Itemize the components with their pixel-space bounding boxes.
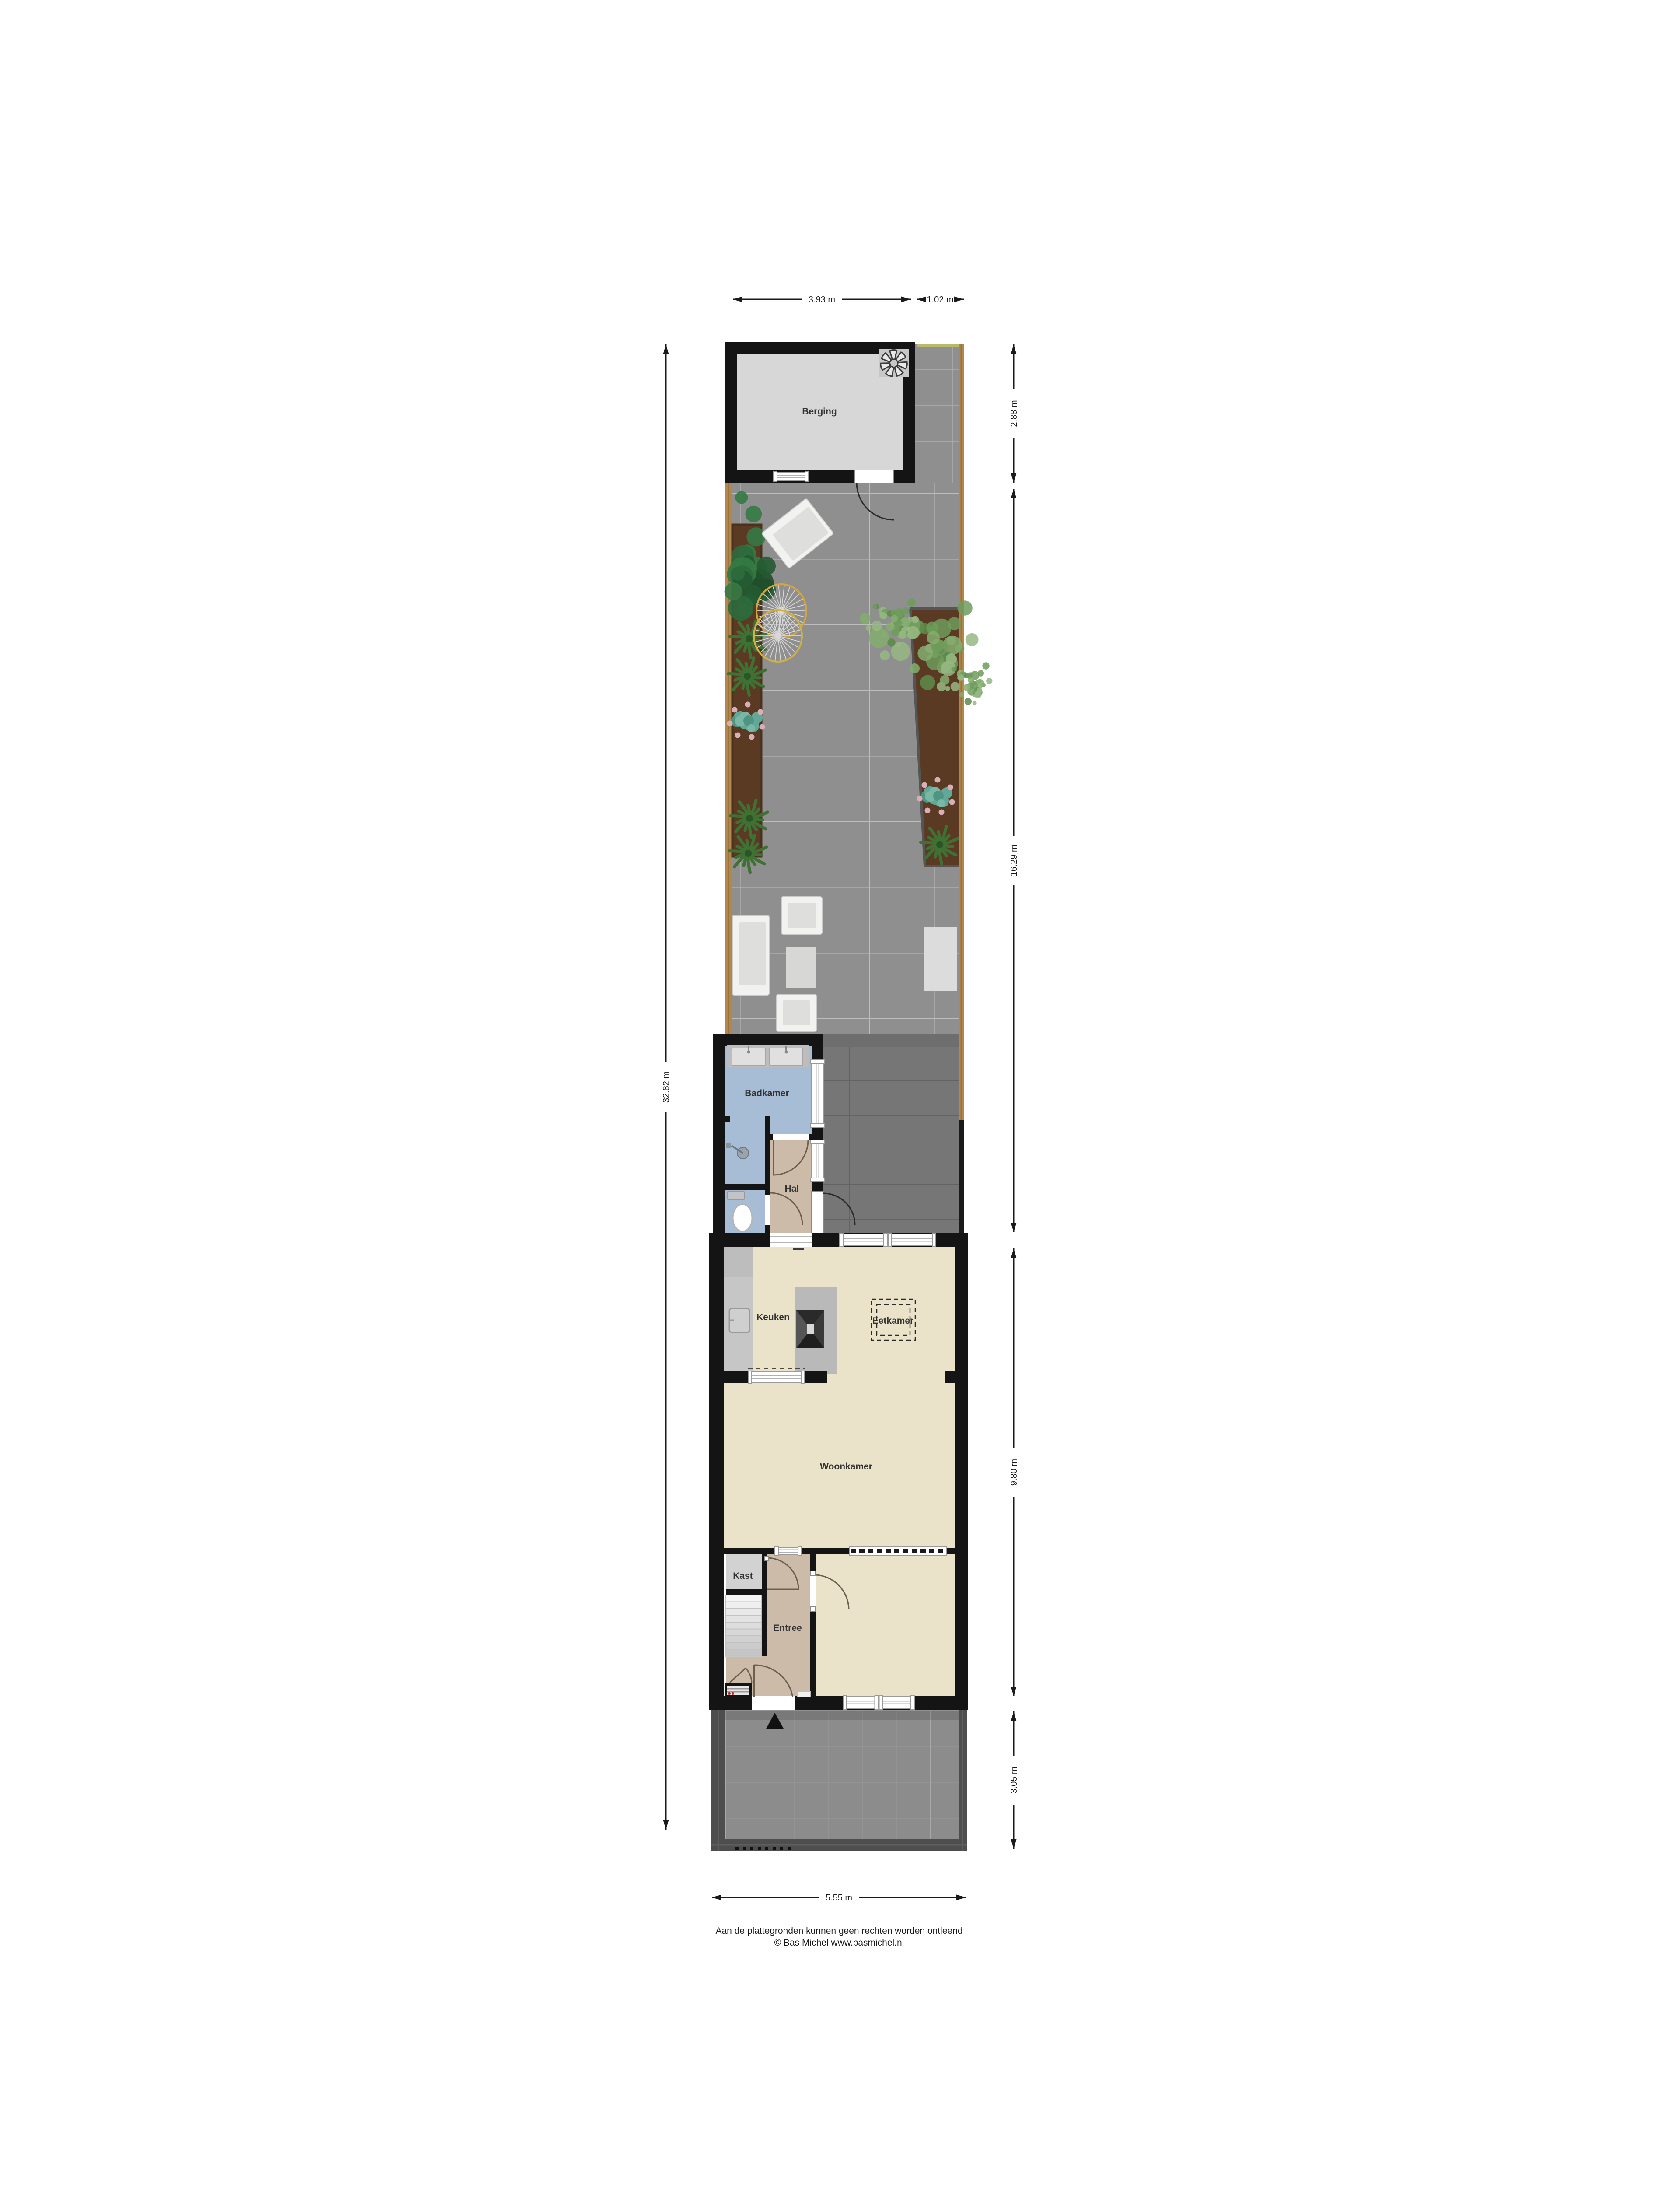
svg-text:9.80 m: 9.80 m — [1009, 1459, 1019, 1486]
svg-text:Entree: Entree — [773, 1623, 801, 1633]
svg-text:Hal: Hal — [785, 1184, 799, 1194]
svg-text:Aan de plattegronden kunnen ge: Aan de plattegronden kunnen geen rechten… — [715, 1926, 962, 1936]
svg-text:Kast: Kast — [733, 1571, 753, 1581]
svg-text:Keuken: Keuken — [756, 1312, 790, 1322]
svg-text:5.55 m: 5.55 m — [826, 1893, 852, 1903]
svg-text:2.88 m: 2.88 m — [1009, 400, 1019, 427]
svg-text:Badkamer: Badkamer — [745, 1088, 789, 1098]
svg-text:3.05 m: 3.05 m — [1009, 1767, 1019, 1793]
svg-text:3.93 m: 3.93 m — [808, 295, 835, 305]
svg-text:32.82 m: 32.82 m — [661, 1071, 671, 1103]
svg-text:Woonkamer: Woonkamer — [820, 1462, 872, 1472]
svg-text:© Bas Michel www.basmichel.nl: © Bas Michel www.basmichel.nl — [774, 1938, 904, 1948]
svg-text:Eetkamer: Eetkamer — [872, 1316, 914, 1326]
svg-text:16.29 m: 16.29 m — [1009, 845, 1019, 876]
svg-text:Berging: Berging — [802, 407, 836, 417]
svg-text:1.02 m: 1.02 m — [927, 295, 953, 305]
